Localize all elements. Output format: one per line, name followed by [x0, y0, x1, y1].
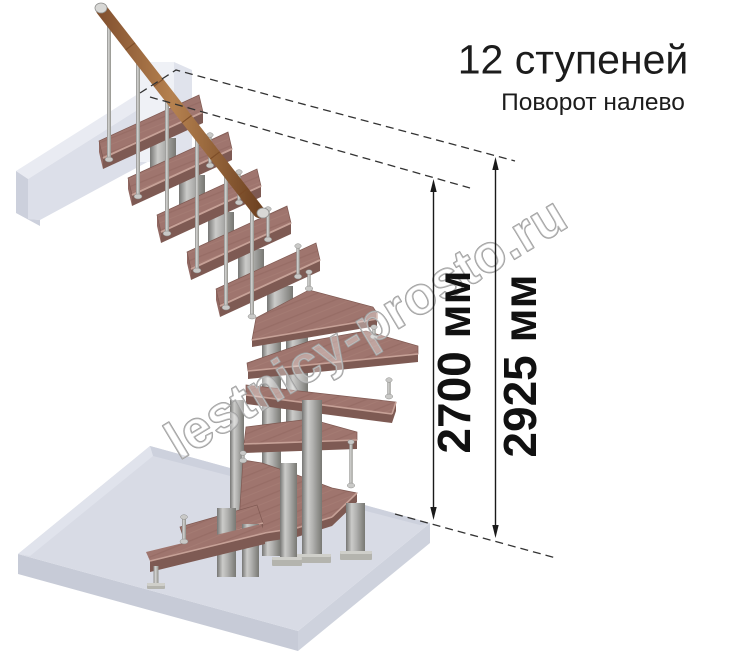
svg-text:Поворот налево: Поворот налево — [501, 89, 685, 116]
svg-text:12 ступеней: 12 ступеней — [458, 37, 689, 83]
svg-text:2925 мм: 2925 мм — [494, 274, 546, 457]
svg-text:2700 мм: 2700 мм — [428, 270, 480, 453]
